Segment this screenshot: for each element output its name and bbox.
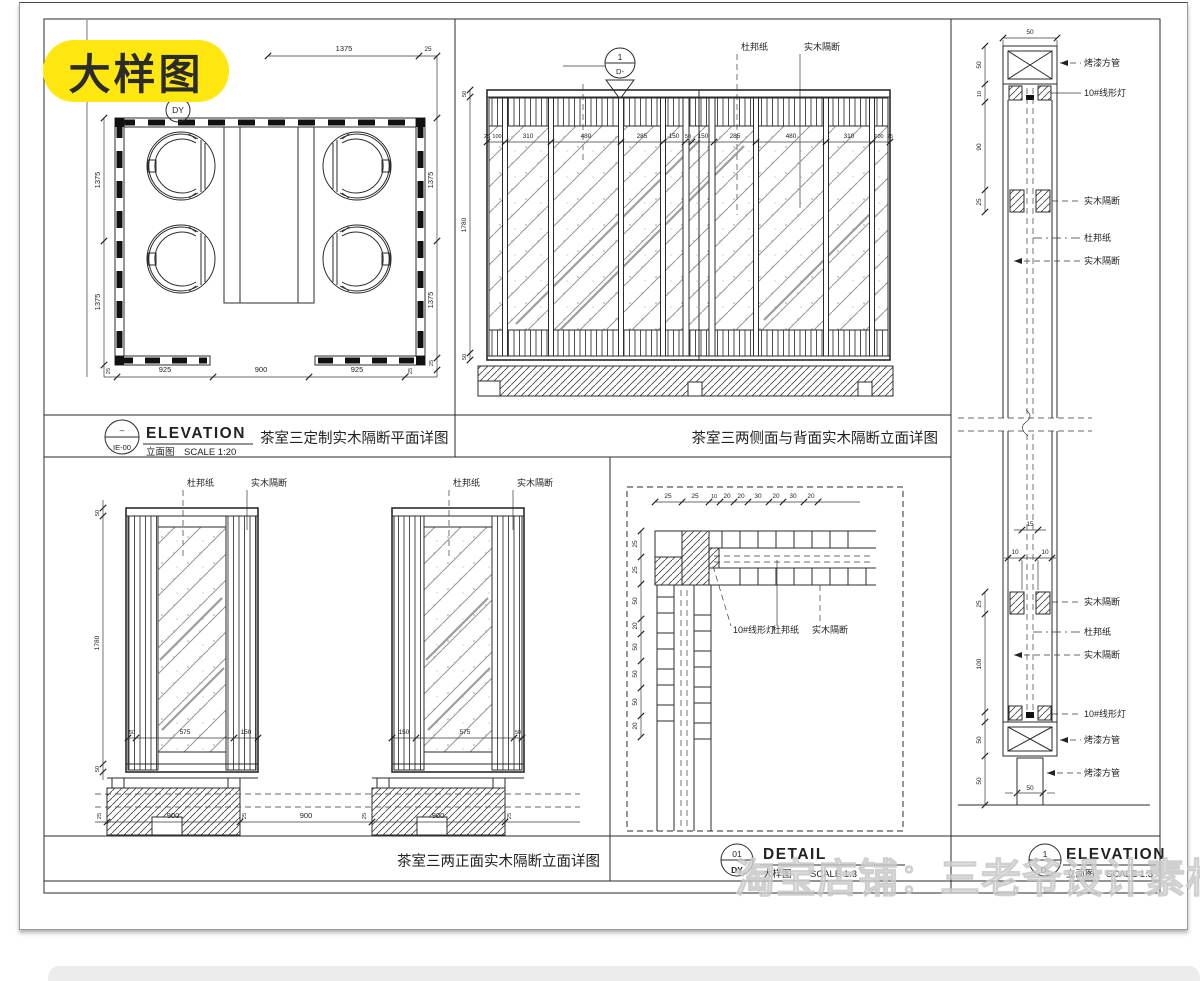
dim: 480 xyxy=(786,133,797,140)
dim: 1375 xyxy=(93,294,102,311)
chair xyxy=(147,225,215,293)
material-label: 杜邦纸 xyxy=(741,41,768,52)
material-label: 10#线形灯 xyxy=(1084,87,1126,98)
dim: 50 xyxy=(632,670,639,678)
detail-title-en: DETAIL xyxy=(763,846,827,863)
material-label: 杜邦纸 xyxy=(453,477,480,488)
dim: 150 xyxy=(669,133,680,140)
dim: 900 xyxy=(432,811,445,820)
ref-num: 1 xyxy=(1043,849,1048,859)
dim: 285 xyxy=(637,133,648,140)
detail-scale: SCALE 1:3 xyxy=(810,869,857,880)
dim: 100 xyxy=(976,658,983,669)
dim: 50 xyxy=(632,643,639,651)
dim: 150 xyxy=(241,729,252,736)
dim: 50 xyxy=(462,354,468,360)
dim: 1375 xyxy=(93,172,102,189)
dim: 1375 xyxy=(336,44,353,53)
ref-code: D- xyxy=(1041,865,1050,875)
material-label: 实木隔断 xyxy=(251,477,287,488)
view-title-cn: 立面图 xyxy=(146,446,175,458)
material-label: 实木隔断 xyxy=(804,41,840,52)
detail-view: 25 25 10 20 20 30 20 30 20 25 25 50 20 5… xyxy=(627,487,905,880)
dim: 90 xyxy=(976,143,983,151)
dim: 25 xyxy=(362,813,368,819)
chair xyxy=(323,225,391,293)
dim: 20 xyxy=(772,493,780,500)
dim: 25 xyxy=(429,360,435,366)
ref-marker-num: 1 xyxy=(618,52,623,62)
dim: 50 xyxy=(129,730,135,736)
material-label: 实木隔断 xyxy=(1084,596,1120,607)
dim: 50 xyxy=(95,766,101,772)
dim: 25 xyxy=(97,813,103,819)
dim: 25 xyxy=(106,368,112,374)
dim: 25 xyxy=(408,368,414,374)
dim: 20 xyxy=(807,493,815,500)
material-label: 实木隔断 xyxy=(1084,195,1120,206)
ref-code: IE-00 xyxy=(113,443,131,452)
dim: 900 xyxy=(300,811,313,820)
dim: 20 xyxy=(723,493,731,500)
dim: 310 xyxy=(523,133,534,140)
dim: 10 xyxy=(977,91,983,97)
dim: 30 xyxy=(789,493,797,500)
material-label: 烤漆方管 xyxy=(1084,734,1120,745)
dim: 50 xyxy=(1026,785,1034,792)
ref-dash: – xyxy=(120,425,125,435)
dim: 50 xyxy=(632,597,639,605)
dim: 10 xyxy=(711,494,717,500)
dim: 20 xyxy=(737,493,745,500)
material-label: 实木隔断 xyxy=(517,477,553,488)
dim: 900 xyxy=(255,365,268,374)
dim: 1375 xyxy=(426,172,435,189)
ref-num: 01 xyxy=(732,849,742,859)
dim: 25 xyxy=(632,540,639,548)
material-label: 实木隔断 xyxy=(1084,649,1120,660)
material-label: 杜邦纸 xyxy=(1084,232,1111,243)
dim: 25 xyxy=(976,198,983,206)
material-label: 烤漆方管 xyxy=(1084,57,1120,68)
dim: 25 xyxy=(664,493,672,500)
dim: 25 xyxy=(976,600,983,608)
dim: 150 xyxy=(698,133,709,140)
back-elevation-view: 1 D- 杜邦纸 实木隔断 xyxy=(461,41,893,396)
dim: 900 xyxy=(167,811,180,820)
view-scale: SCALE 1:20 xyxy=(184,447,236,458)
dim: 1780 xyxy=(461,217,468,232)
dim: 25 xyxy=(242,813,248,819)
dim: 50 xyxy=(632,698,639,706)
dim: 310 xyxy=(844,133,855,140)
dim: 50 xyxy=(976,736,983,744)
back-elevation-title: 茶室三两侧面与背面实木隔断立面详图 xyxy=(692,430,939,447)
dim: 25 xyxy=(632,566,639,574)
material-label: 10#线形灯 xyxy=(733,624,775,635)
table xyxy=(224,127,314,303)
dim: 1780 xyxy=(94,635,101,650)
dim: 20 xyxy=(632,622,639,630)
plan-title: 茶室三定制实木隔断平面详图 xyxy=(260,430,449,447)
ref-marker-code: D- xyxy=(616,67,624,76)
dim: 50 xyxy=(685,134,691,140)
dim: 10 xyxy=(1011,549,1019,556)
dim: 480 xyxy=(581,133,592,140)
detail-title-cn: 大样图 xyxy=(763,868,792,880)
dim: 50 xyxy=(515,730,521,736)
section-title-cn: 立面图 xyxy=(1066,868,1095,880)
section-title-en: ELEVATION xyxy=(1066,846,1166,863)
detail-drawing-badge: 大样图 xyxy=(43,40,229,102)
cad-drawing: DY 1375 25 1375 1375 1375 1375 25 925 90… xyxy=(0,0,1200,981)
dim: 20 xyxy=(632,722,639,730)
dim: 10 xyxy=(1041,549,1049,556)
dim: 575 xyxy=(180,729,191,736)
material-label: 烤漆方管 xyxy=(1084,767,1120,778)
dim: 150 xyxy=(399,729,410,736)
dim: 50 xyxy=(976,777,983,785)
dim: 50 xyxy=(976,61,983,69)
dim: 25 xyxy=(507,813,513,819)
dim: 100 xyxy=(874,134,883,140)
dim: 25 xyxy=(484,134,490,140)
plan-marker: DY xyxy=(172,105,184,115)
dim: 1375 xyxy=(426,292,435,309)
dim: 575 xyxy=(460,729,471,736)
chair xyxy=(147,132,215,200)
product-image-page: DY 1375 25 1375 1375 1375 1375 25 925 90… xyxy=(0,0,1200,981)
front-elevation-view: 杜邦纸 实木隔断 杜邦纸 实木隔断 xyxy=(94,477,600,870)
section-scale: SCALE 1:3 xyxy=(1106,869,1153,880)
dim: 30 xyxy=(754,493,762,500)
chair xyxy=(323,132,391,200)
material-label: 10#线形灯 xyxy=(1084,708,1126,719)
section-view: 50 15 10 10 xyxy=(958,29,1166,880)
material-label: 实木隔断 xyxy=(812,624,848,635)
dim: 925 xyxy=(159,365,172,374)
dim: 50 xyxy=(1026,29,1034,36)
title-band: – IE-00 ELEVATION 立面图 SCALE 1:20 茶室三定制实木… xyxy=(105,420,938,458)
material-label: 杜邦纸 xyxy=(772,624,799,635)
dim: 285 xyxy=(730,133,741,140)
dim: 925 xyxy=(351,365,364,374)
ref-code: DY xyxy=(731,865,743,875)
material-label: 实木隔断 xyxy=(1084,255,1120,266)
dim: 100 xyxy=(492,134,501,140)
dim: 25 xyxy=(887,134,893,140)
dim: 25 xyxy=(691,493,699,500)
material-label: 杜邦纸 xyxy=(1084,626,1111,637)
material-label: 杜邦纸 xyxy=(187,477,214,488)
dim: 25 xyxy=(424,46,432,53)
front-elevation-title: 茶室三两正面实木隔断立面详图 xyxy=(397,853,600,870)
dim: 50 xyxy=(95,510,101,516)
view-title-en: ELEVATION xyxy=(146,425,246,442)
dim: 15 xyxy=(1026,521,1034,528)
dim: 50 xyxy=(462,91,468,97)
